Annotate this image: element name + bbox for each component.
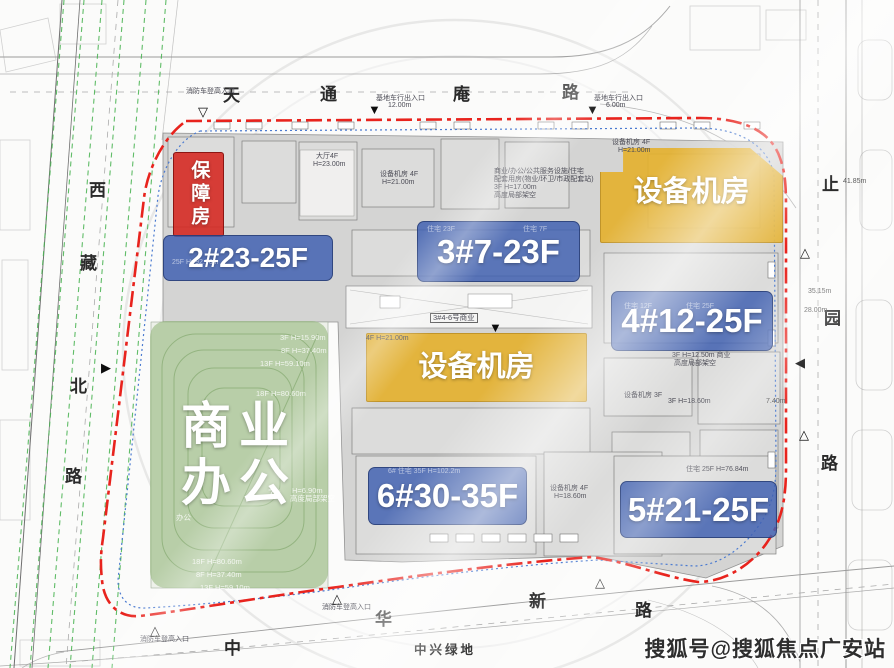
plaza-kiosk: [468, 294, 512, 308]
sohu-watermark: 搜狐号@搜狐焦点广安站: [645, 633, 886, 663]
base-drawing: [0, 0, 894, 668]
site-plan-canvas: 保障房2#23-25F3#7-23F设备机房4#12-25F设备机房商业 办公6…: [0, 0, 894, 668]
plaza-kiosk: [380, 296, 400, 308]
podium-base: [151, 322, 328, 588]
courtyard: [300, 150, 354, 216]
green-space-label: 中兴绿地: [414, 639, 476, 658]
